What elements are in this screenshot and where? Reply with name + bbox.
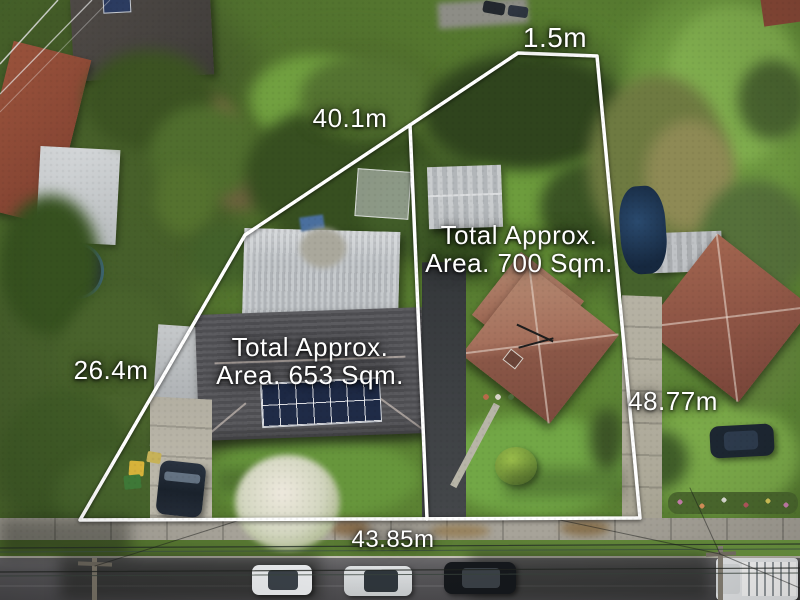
lot-700-area-label: Total Approx. Area. 700 Sqm.: [425, 221, 613, 277]
lot-653-area-line1: Total Approx.: [216, 333, 404, 361]
lot-700-area-line2: Area. 700 Sqm.: [425, 249, 613, 277]
lot-700-area-line1: Total Approx.: [425, 221, 613, 249]
measurement-label-right: 48.77m: [628, 386, 718, 417]
measurement-label-rear: 40.1m: [313, 103, 388, 134]
lot-653-area-label: Total Approx. Area. 653 Sqm.: [216, 333, 404, 389]
aerial-photo: 1.5m 40.1m 26.4m 48.77m 43.85m Total App…: [0, 0, 800, 600]
vignette: [0, 0, 800, 600]
measurement-label-front: 43.85m: [351, 526, 434, 554]
measurement-label-top: 1.5m: [523, 22, 587, 54]
lot-653-area-line2: Area. 653 Sqm.: [216, 361, 404, 389]
measurement-label-left: 26.4m: [74, 355, 149, 386]
